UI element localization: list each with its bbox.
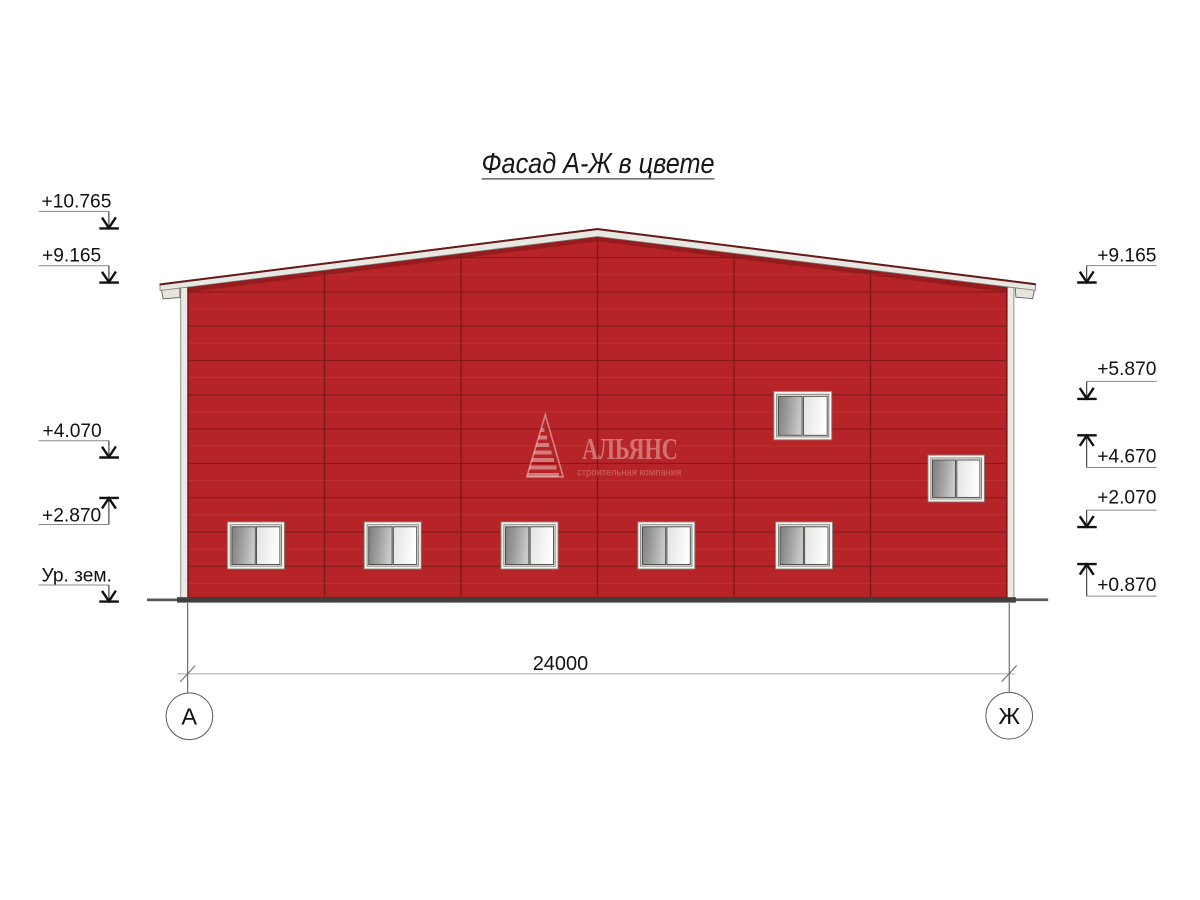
svg-text:Ж: Ж	[998, 703, 1020, 729]
svg-text:+2.870: +2.870	[42, 505, 101, 526]
svg-text:+9.165: +9.165	[1097, 246, 1156, 267]
svg-text:+2.070: +2.070	[1097, 488, 1156, 509]
svg-text:Ур. зем.: Ур. зем.	[42, 566, 112, 587]
svg-text:Фасад А-Ж в цвете: Фасад А-Ж в цвете	[482, 148, 715, 180]
svg-text:+4.670: +4.670	[1097, 446, 1156, 467]
svg-text:+10.765: +10.765	[42, 192, 112, 213]
svg-text:А: А	[181, 703, 197, 729]
svg-text:+0.870: +0.870	[1097, 575, 1156, 596]
svg-text:+5.870: +5.870	[1097, 359, 1156, 380]
svg-text:24000: 24000	[533, 653, 589, 675]
svg-text:АЛЬЯНС: АЛЬЯНС	[582, 431, 678, 466]
svg-text:+9.165: +9.165	[42, 246, 101, 267]
svg-text:+4.070: +4.070	[43, 421, 102, 442]
svg-text:строительная компания: строительная компания	[577, 468, 681, 479]
